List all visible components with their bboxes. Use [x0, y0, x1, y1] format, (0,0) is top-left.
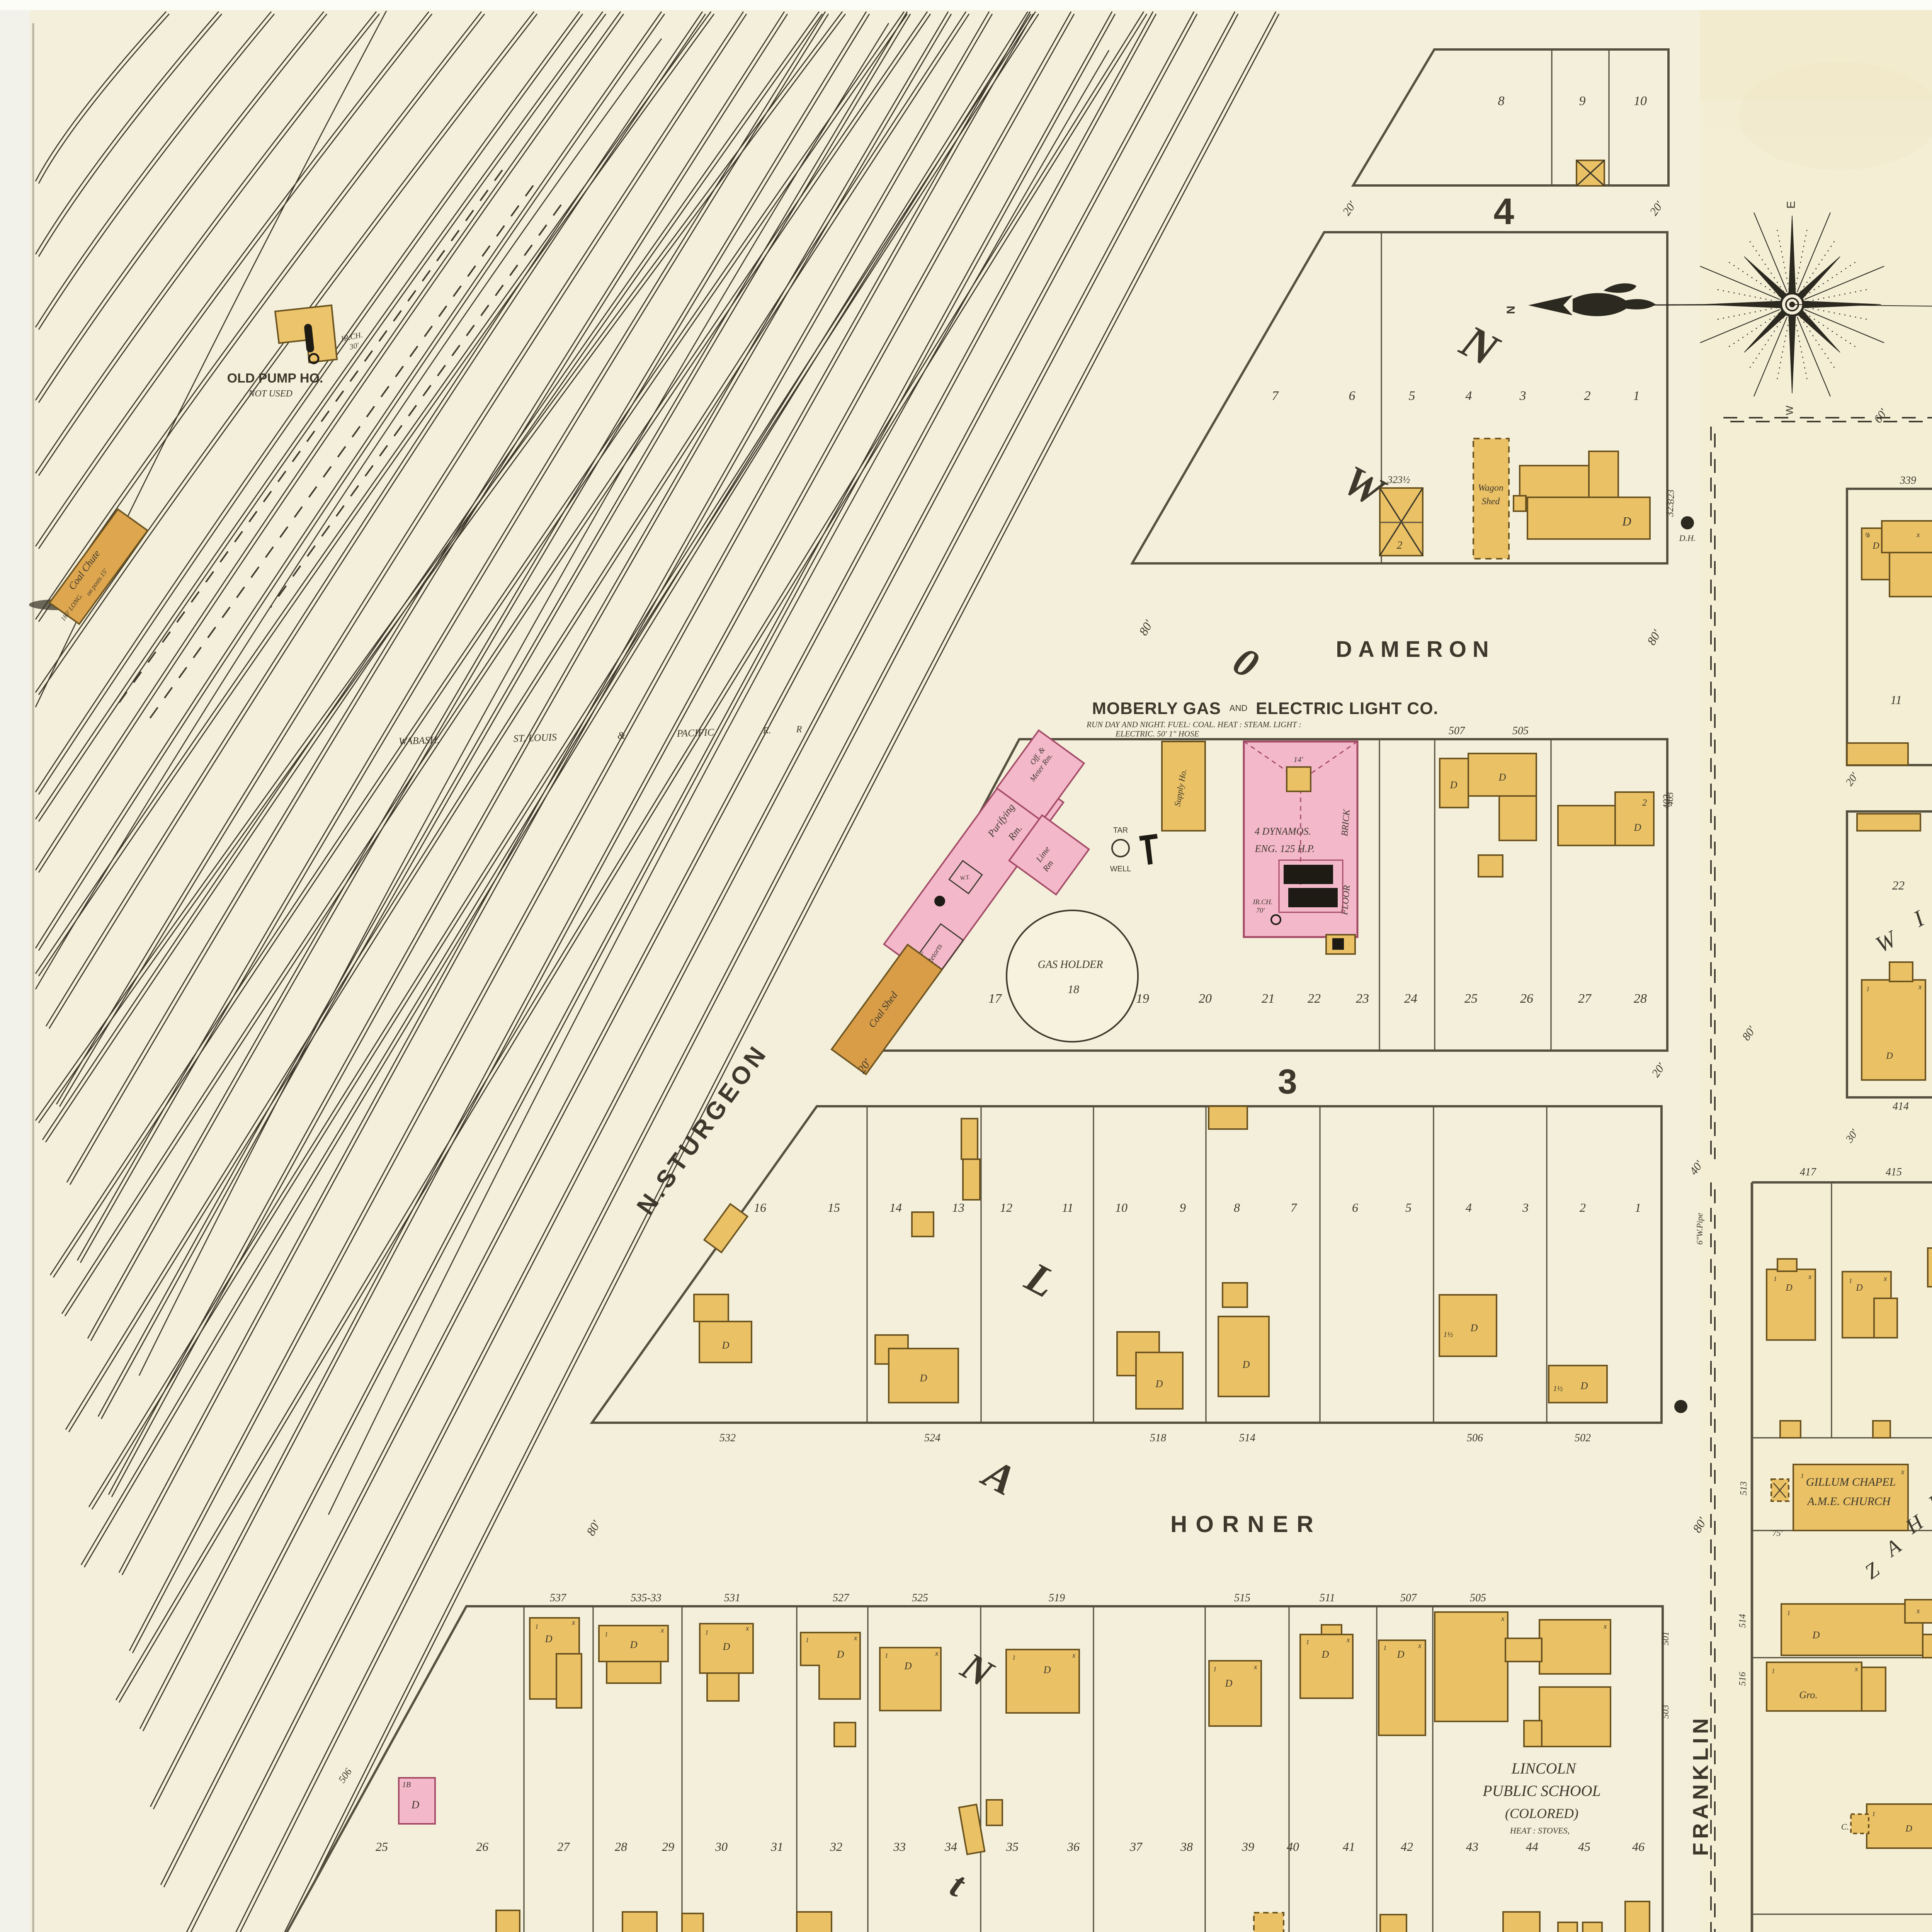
svg-text:x: x	[1808, 1273, 1812, 1281]
svg-text:16: 16	[754, 1201, 766, 1214]
svg-text:43: 43	[1466, 1840, 1478, 1854]
svg-text:x: x	[1854, 1665, 1858, 1673]
svg-text:1: 1	[1012, 1654, 1016, 1661]
svg-text:D: D	[1785, 1283, 1792, 1293]
svg-text:514: 514	[1738, 1614, 1748, 1628]
svg-text:PACIFIC: PACIFIC	[676, 726, 714, 739]
svg-text:2: 2	[1642, 798, 1647, 808]
svg-text:26: 26	[476, 1840, 488, 1854]
svg-text:1: 1	[605, 1631, 608, 1638]
svg-text:E: E	[1785, 201, 1798, 209]
svg-text:TAR: TAR	[1113, 826, 1128, 835]
svg-text:527: 527	[833, 1592, 849, 1604]
svg-text:23: 23	[1356, 992, 1369, 1006]
svg-text:537: 537	[550, 1592, 566, 1604]
svg-text:414: 414	[1893, 1100, 1909, 1112]
svg-text:D.H.: D.H.	[1679, 533, 1696, 543]
svg-text:22: 22	[1308, 992, 1321, 1006]
svg-text:505: 505	[1470, 1592, 1486, 1604]
svg-text:1: 1	[1635, 1201, 1641, 1214]
svg-text:1: 1	[705, 1629, 709, 1636]
svg-text:1: 1	[1787, 1609, 1791, 1617]
svg-text:1: 1	[1213, 1665, 1217, 1673]
svg-text:3: 3	[1522, 1201, 1529, 1214]
svg-text:D: D	[411, 1799, 419, 1811]
svg-text:x: x	[571, 1619, 575, 1627]
svg-text:535-33: 535-33	[631, 1592, 661, 1604]
svg-text:1B: 1B	[402, 1781, 411, 1789]
svg-text:4 DYNAMOS.: 4 DYNAMOS.	[1255, 826, 1311, 837]
svg-text:x: x	[745, 1624, 749, 1633]
svg-text:33: 33	[893, 1840, 906, 1854]
svg-text:2: 2	[1397, 539, 1402, 551]
svg-text:GAS HOLDER: GAS HOLDER	[1038, 959, 1103, 971]
svg-text:D: D	[630, 1639, 638, 1650]
svg-text:x: x	[1901, 1468, 1905, 1476]
svg-text:11: 11	[1062, 1201, 1073, 1214]
svg-text:505: 505	[1512, 725, 1529, 737]
svg-text:39: 39	[1242, 1840, 1254, 1854]
svg-text:x: x	[660, 1626, 664, 1634]
svg-text:D: D	[1397, 1649, 1405, 1660]
svg-text:MOBERLY GAS: MOBERLY GAS	[1092, 699, 1221, 718]
svg-text:x: x	[935, 1650, 939, 1658]
svg-text:14': 14'	[1294, 755, 1303, 764]
svg-text:24: 24	[1404, 992, 1417, 1006]
svg-text:6: 6	[1349, 389, 1355, 403]
svg-text:1: 1	[1849, 1277, 1852, 1284]
svg-text:323½: 323½	[1387, 474, 1410, 485]
svg-text:4: 4	[1466, 1201, 1472, 1214]
svg-text:34: 34	[944, 1840, 957, 1854]
svg-text:518: 518	[1150, 1432, 1166, 1444]
svg-text:x: x	[1918, 983, 1922, 991]
svg-text:1: 1	[535, 1623, 539, 1630]
svg-text:1½: 1½	[1444, 1330, 1453, 1339]
svg-text:29: 29	[662, 1840, 674, 1854]
svg-text:323: 323	[1664, 502, 1675, 517]
svg-text:14: 14	[889, 1201, 902, 1214]
svg-text:ELECTRIC. 50' 1" HOSE: ELECTRIC. 50' 1" HOSE	[1115, 729, 1199, 738]
svg-text:10: 10	[1115, 1201, 1128, 1214]
svg-text:HEAT : STOVES,: HEAT : STOVES,	[1510, 1826, 1570, 1835]
svg-text:RUN DAY AND NIGHT. FUEL: COAL: RUN DAY AND NIGHT. FUEL: COAL. HEAT : ST…	[1086, 720, 1301, 729]
svg-text:R.: R.	[763, 726, 771, 736]
svg-text:30: 30	[715, 1840, 728, 1854]
svg-text:70': 70'	[1256, 906, 1265, 914]
svg-text:75': 75'	[1772, 1528, 1783, 1538]
svg-text:516: 516	[1738, 1672, 1748, 1686]
svg-text:Gro.: Gro.	[1799, 1689, 1817, 1701]
svg-text:532: 532	[719, 1432, 736, 1444]
svg-text:D: D	[1634, 822, 1641, 833]
svg-text:D: D	[723, 1641, 730, 1652]
svg-text:x: x	[1883, 1275, 1887, 1283]
svg-text:&: &	[617, 730, 626, 741]
svg-text:x: x	[1253, 1663, 1257, 1671]
svg-text:D: D	[1155, 1378, 1163, 1389]
svg-text:7: 7	[1291, 1201, 1298, 1214]
svg-text:D: D	[1580, 1380, 1588, 1391]
svg-text:2: 2	[1580, 1201, 1586, 1214]
svg-text:17: 17	[988, 992, 1002, 1006]
svg-text:x: x	[1072, 1651, 1076, 1660]
svg-text:513: 513	[1739, 1481, 1749, 1495]
svg-text:D: D	[545, 1633, 553, 1645]
svg-text:511: 511	[1320, 1592, 1335, 1604]
svg-text:1: 1	[1306, 1638, 1310, 1646]
svg-text:28: 28	[615, 1840, 627, 1854]
svg-text:D: D	[920, 1372, 927, 1384]
svg-text:6"W.Pipe: 6"W.Pipe	[1695, 1213, 1704, 1245]
svg-text:AND: AND	[1230, 703, 1247, 713]
svg-text:x: x	[1916, 531, 1920, 539]
svg-text:8: 8	[1498, 94, 1505, 108]
svg-text:OLD PUMP HO.: OLD PUMP HO.	[227, 371, 323, 386]
svg-text:46: 46	[1632, 1840, 1645, 1854]
svg-text:D: D	[1225, 1678, 1233, 1689]
svg-text:1: 1	[1801, 1472, 1804, 1480]
svg-text:7: 7	[1272, 389, 1279, 403]
svg-text:502: 502	[1575, 1432, 1591, 1444]
svg-text:D: D	[1043, 1664, 1051, 1675]
svg-text:(COLORED): (COLORED)	[1505, 1806, 1578, 1821]
svg-text:525: 525	[912, 1592, 928, 1604]
svg-text:A.M.E. CHURCH: A.M.E. CHURCH	[1807, 1495, 1891, 1508]
svg-text:20: 20	[1199, 992, 1212, 1006]
svg-text:9: 9	[1579, 94, 1586, 108]
svg-text:3: 3	[1278, 1063, 1297, 1101]
svg-text:1: 1	[1633, 389, 1640, 403]
svg-text:6: 6	[1352, 1201, 1358, 1214]
svg-text:D: D	[1498, 772, 1506, 783]
svg-text:415: 415	[1886, 1166, 1902, 1178]
svg-text:D: D	[722, 1340, 730, 1351]
svg-text:1: 1	[1383, 1644, 1387, 1651]
svg-text:8: 8	[1234, 1201, 1240, 1214]
svg-text:LINCOLN: LINCOLN	[1511, 1760, 1577, 1777]
svg-text:323: 323	[1666, 490, 1676, 504]
svg-text:403: 403	[1665, 792, 1675, 806]
svg-text:GILLUM CHAPEL: GILLUM CHAPEL	[1806, 1476, 1896, 1488]
svg-text:2: 2	[1584, 389, 1591, 403]
svg-text:N: N	[1505, 306, 1517, 314]
svg-text:HORNER: HORNER	[1170, 1511, 1322, 1537]
svg-text:10: 10	[1634, 94, 1647, 108]
svg-text:1: 1	[1866, 985, 1870, 993]
svg-text:D: D	[1855, 1283, 1862, 1293]
svg-text:ELECTRIC LIGHT CO.: ELECTRIC LIGHT CO.	[1256, 699, 1439, 718]
svg-text:26: 26	[1520, 992, 1533, 1006]
svg-text:13: 13	[952, 1201, 964, 1214]
svg-text:1: 1	[806, 1636, 809, 1644]
svg-text:x: x	[1418, 1642, 1422, 1650]
svg-text:5: 5	[1405, 1201, 1412, 1214]
svg-text:5: 5	[1409, 389, 1415, 403]
svg-text:44: 44	[1526, 1840, 1538, 1854]
svg-text:Shed: Shed	[1482, 497, 1500, 507]
svg-text:x: x	[854, 1634, 857, 1642]
svg-text:4: 4	[1493, 191, 1514, 232]
svg-text:D: D	[1450, 779, 1458, 791]
svg-text:25: 25	[376, 1840, 388, 1854]
svg-text:D: D	[1242, 1359, 1250, 1370]
svg-text:1: 1	[885, 1652, 888, 1659]
svg-text:40: 40	[1287, 1840, 1299, 1854]
svg-text:45: 45	[1578, 1840, 1590, 1854]
svg-text:501: 501	[1661, 1631, 1671, 1645]
svg-text:D: D	[1905, 1824, 1912, 1834]
svg-text:339: 339	[1900, 474, 1916, 486]
svg-text:519: 519	[1049, 1592, 1065, 1604]
svg-text:1: 1	[1772, 1667, 1775, 1675]
svg-text:21: 21	[1262, 992, 1275, 1006]
svg-text:x: x	[1346, 1636, 1350, 1644]
svg-text:D: D	[1872, 541, 1879, 551]
svg-text:503: 503	[1661, 1705, 1671, 1719]
svg-text:506: 506	[1467, 1432, 1483, 1444]
svg-text:4: 4	[1466, 389, 1472, 403]
svg-text:507: 507	[1449, 725, 1465, 737]
svg-text:x: x	[1603, 1622, 1607, 1631]
svg-text:x: x	[1501, 1615, 1505, 1623]
svg-text:25: 25	[1464, 992, 1478, 1006]
svg-text:WABASH.: WABASH.	[398, 734, 440, 747]
svg-text:D: D	[837, 1649, 844, 1660]
svg-text:D: D	[1812, 1629, 1820, 1641]
svg-text:ENG. 125 H.P.: ENG. 125 H.P.	[1255, 843, 1315, 854]
svg-text:37: 37	[1129, 1840, 1143, 1854]
svg-text:9: 9	[1180, 1201, 1186, 1214]
svg-text:515: 515	[1234, 1592, 1250, 1604]
svg-text:3: 3	[1519, 389, 1526, 403]
svg-text:35: 35	[1006, 1840, 1019, 1854]
svg-text:x: x	[1916, 1607, 1920, 1615]
svg-text:531: 531	[724, 1592, 740, 1604]
svg-text:W: W	[1784, 405, 1795, 415]
svg-text:32: 32	[830, 1840, 842, 1854]
svg-text:28: 28	[1634, 992, 1647, 1006]
svg-text:Wagon: Wagon	[1478, 483, 1503, 493]
svg-text:18: 18	[1068, 983, 1079, 996]
svg-text:36: 36	[1067, 1840, 1080, 1854]
svg-text:31: 31	[770, 1840, 783, 1854]
svg-text:507: 507	[1400, 1592, 1417, 1604]
svg-text:R: R	[796, 724, 802, 735]
svg-text:D: D	[904, 1660, 912, 1672]
svg-text:514: 514	[1239, 1432, 1255, 1444]
svg-text:NOT USED: NOT USED	[248, 389, 293, 399]
svg-text:12: 12	[1000, 1201, 1012, 1214]
svg-text:D: D	[1622, 514, 1631, 528]
svg-text:D: D	[1470, 1322, 1478, 1333]
svg-text:PUBLIC SCHOOL: PUBLIC SCHOOL	[1482, 1782, 1601, 1799]
svg-text:27: 27	[1578, 992, 1592, 1006]
svg-text:D: D	[1886, 1051, 1893, 1061]
svg-text:417: 417	[1800, 1166, 1816, 1178]
svg-text:FRANKLIN: FRANKLIN	[1688, 1714, 1713, 1856]
svg-text:IR.CH.: IR.CH.	[1253, 898, 1273, 906]
svg-text:38: 38	[1180, 1840, 1193, 1854]
svg-text:D: D	[1321, 1649, 1329, 1660]
svg-text:1: 1	[1872, 1810, 1876, 1818]
svg-text:1: 1	[1774, 1275, 1777, 1282]
svg-text:C.: C.	[1841, 1822, 1849, 1832]
svg-text:27: 27	[557, 1840, 570, 1854]
svg-text:15: 15	[828, 1201, 840, 1214]
svg-text:DAMERON: DAMERON	[1336, 637, 1495, 662]
svg-text:42: 42	[1401, 1840, 1413, 1854]
svg-text:22: 22	[1892, 878, 1905, 892]
svg-text:1: 1	[1866, 531, 1870, 539]
svg-text:WELL: WELL	[1110, 865, 1131, 873]
svg-text:11: 11	[1890, 693, 1902, 707]
svg-text:ST. LOUIS: ST. LOUIS	[513, 731, 557, 744]
svg-text:524: 524	[924, 1432, 940, 1444]
svg-text:1½: 1½	[1553, 1384, 1563, 1393]
svg-text:19: 19	[1136, 992, 1149, 1006]
svg-text:41: 41	[1343, 1840, 1355, 1854]
